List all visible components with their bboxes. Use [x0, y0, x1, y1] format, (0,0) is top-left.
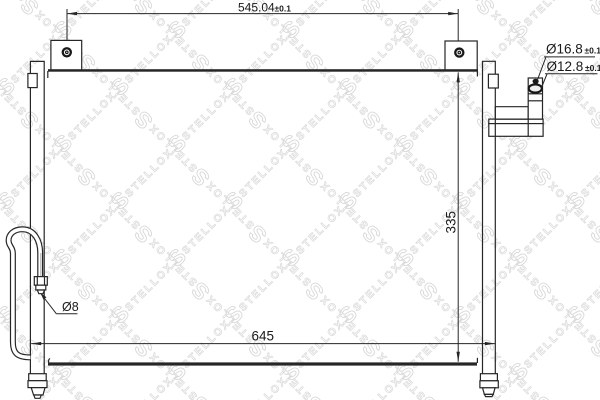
svg-text:Ø12.8: Ø12.8	[547, 59, 584, 74]
svg-text:±0.1: ±0.1	[585, 63, 600, 73]
svg-text:545.04: 545.04	[238, 1, 275, 15]
svg-text:645: 645	[252, 328, 275, 343]
svg-text:Ø16.8: Ø16.8	[546, 41, 583, 56]
svg-text:Ø8: Ø8	[62, 300, 79, 314]
svg-text:335: 335	[444, 211, 459, 234]
svg-text:±0.1: ±0.1	[585, 45, 600, 55]
svg-text:±0.1: ±0.1	[275, 3, 292, 13]
